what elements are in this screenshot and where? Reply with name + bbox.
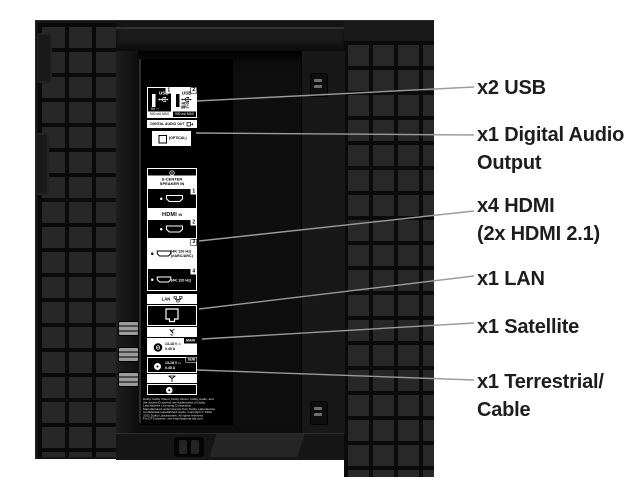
satellite-sub-label: SUB 13-18 V ⎓ 0.45 A (147, 357, 197, 373)
digital-audio-out-header: DIGITAL AUDIO OUT (147, 120, 197, 128)
hdmi-logo: HDMI (162, 212, 177, 218)
lan-header: LAN (147, 294, 197, 304)
coax-connector-icon (165, 386, 174, 395)
hdmi-in-label: IN (179, 214, 183, 218)
mount-bracket (37, 33, 52, 83)
hdmi-port-icon (156, 276, 172, 284)
indicator-dot (160, 197, 163, 200)
optical-port-label: (OPTICAL) (151, 130, 192, 147)
port-number-badge: 2 (191, 219, 198, 226)
stand-tabs (174, 437, 204, 457)
digital-audio-out-label: DIGITAL AUDIO OUT (150, 122, 184, 126)
hdmi-port-1-label: 1 (147, 188, 197, 209)
annotation-usb: x2 USB (477, 74, 546, 102)
usb-current: 500 mA MAX (148, 112, 171, 118)
hdmi-port-3-label: 3 (4K 120 Hz)(eARC/ARC) (147, 239, 197, 268)
terrestrial-port-label (147, 384, 197, 395)
sat-current: 0.45 A (165, 367, 175, 371)
hdmi-in-strip: HDMIIN (147, 209, 197, 219)
optical-out-icon (187, 121, 194, 127)
port-number-badge: 3 (191, 239, 198, 246)
hdmi-port-4-label: 4 (4K 120 Hz) (147, 268, 197, 291)
tv-back-panel: 1 USB 5V ⎓ 500 mA MAX 2 (35, 20, 434, 459)
panel-top-strip (344, 21, 434, 41)
port-label-column: 1 USB 5V ⎓ 500 mA MAX 2 (141, 81, 233, 421)
coax-connector-icon (153, 362, 162, 371)
hdmi-port-icon (156, 250, 172, 258)
texture-grid-right (344, 41, 434, 477)
stand-mount-band (116, 433, 344, 460)
cable-clip (310, 401, 328, 425)
main-badge: MAIN (184, 338, 197, 344)
lan-label: LAN (162, 297, 171, 302)
lan-port-label (147, 305, 197, 326)
mount-bracket (35, 133, 49, 195)
sub-badge: SUB (186, 357, 197, 363)
lan-port-icon (164, 307, 181, 324)
annotation-satellite: x1 Satellite (477, 313, 579, 341)
usb-port-2-label: 2 USB HDD REC 5V ⎓ 900 mA MAX (172, 87, 197, 118)
texture-grid-left (38, 23, 116, 457)
usb-current: 900 mA MAX (173, 112, 196, 118)
cable-clip (118, 321, 139, 336)
usb-label: USB (159, 91, 169, 96)
cable-clip (118, 372, 139, 387)
usb-label: USB (182, 91, 192, 96)
sat-current: 0.45 A (165, 348, 175, 352)
bay-right-wall (301, 51, 345, 433)
hdmi-spec-text: (4K 120 Hz) (171, 279, 191, 283)
recess-top-edge (116, 27, 344, 51)
network-icon (173, 296, 182, 303)
indicator-dot (151, 278, 154, 281)
usb-slot-icon (152, 94, 156, 107)
usb-slot-icon (176, 94, 180, 107)
usb-port-1-label: 1 USB 5V ⎓ 500 mA MAX (147, 87, 172, 118)
tv-rear-panel-diagram: 1 USB 5V ⎓ 500 mA MAX 2 (0, 0, 640, 480)
annotation-terrestrial: x1 Terrestrial/ Cable (477, 368, 604, 424)
coax-connector-icon (153, 343, 163, 353)
optical-label: (OPTICAL) (169, 137, 187, 141)
hdmi-port-icon (165, 194, 184, 203)
optical-port-icon (159, 135, 168, 144)
cable-clip (310, 73, 328, 97)
satellite-main-label: MAIN 13-18 V ⎓ 0.45 A (147, 338, 197, 355)
sat-voltage: 13-18 V ⎓ (165, 343, 181, 347)
terrestrial-band (147, 374, 197, 383)
annotation-hdmi: x4 HDMI (2x HDMI 2.1) (477, 192, 600, 248)
hdmi-port-icon (165, 225, 184, 234)
hdmi-port-2-label: 2 (147, 219, 197, 239)
cable-clip (118, 347, 139, 362)
dolby-legal-text: Dolby, Dolby Vision, Dolby Atmos, Dolby … (143, 398, 232, 421)
port-number-badge: 1 (191, 188, 198, 195)
connection-bay: 1 USB 5V ⎓ 500 mA MAX 2 (116, 51, 344, 433)
sat-voltage: 13-18 V ⎓ (165, 362, 181, 366)
port-number-badge: 4 (191, 268, 198, 275)
usb-voltage: 5V ⎓ (181, 107, 189, 111)
annotation-lan: x1 LAN (477, 265, 545, 293)
satellite-band (147, 327, 197, 337)
usb-trident-icon (158, 97, 169, 103)
stand-trapezoid (209, 434, 304, 457)
annotation-digital-audio: x1 Digital Audio Output (477, 121, 624, 177)
hdmi-spec-text: (4K 120 Hz)(eARC/ARC) (171, 250, 193, 259)
satellite-dish-icon (168, 328, 177, 336)
indicator-dot (151, 252, 154, 255)
indicator-dot (160, 228, 163, 231)
antenna-icon (168, 375, 177, 383)
